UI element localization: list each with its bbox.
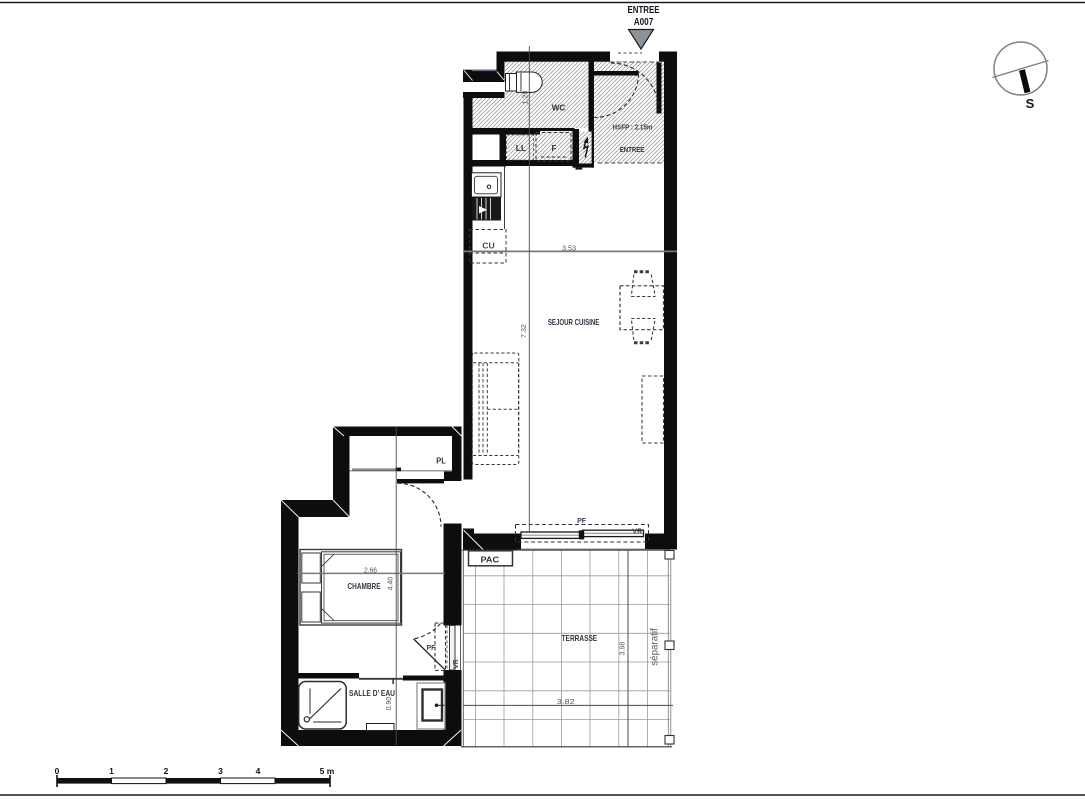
svg-text:7.32: 7.32 [521,324,528,338]
svg-text:ENTREE: ENTREE [620,145,645,154]
svg-text:0: 0 [55,766,60,776]
svg-text:3.53: 3.53 [562,245,576,252]
svg-text:PL: PL [436,457,446,466]
svg-text:VR: VR [453,659,460,669]
svg-text:WC: WC [552,103,566,113]
svg-text:4.40: 4.40 [388,577,395,591]
svg-text:PF: PF [577,518,587,525]
svg-text:F: F [552,144,557,153]
svg-text:3.98: 3.98 [620,642,627,656]
svg-text:5 m: 5 m [320,766,335,776]
svg-text:A007: A007 [634,17,654,28]
svg-text:séparatif: séparatif [649,628,661,666]
svg-text:2.66: 2.66 [364,568,377,575]
svg-text:PF: PF [427,645,437,652]
svg-text:1.29: 1.29 [523,91,530,105]
svg-text:0.90: 0.90 [386,697,393,711]
svg-text:SEJOUR CUISINE: SEJOUR CUISINE [548,317,600,327]
svg-text:3.82: 3.82 [557,699,575,706]
svg-text:VR: VR [632,529,642,536]
svg-text:ENTREE: ENTREE [628,5,660,16]
svg-text:S: S [1026,96,1035,111]
svg-text:2: 2 [164,766,169,776]
svg-text:CU: CU [482,242,495,251]
svg-text:HSFP : 2.15m: HSFP : 2.15m [613,125,653,132]
svg-text:TERRASSE: TERRASSE [562,633,598,643]
svg-text:1: 1 [109,766,114,776]
svg-text:LL: LL [516,144,527,153]
svg-text:PAC: PAC [481,556,500,565]
svg-text:CHAMBRE: CHAMBRE [348,582,382,591]
svg-text:3: 3 [218,766,223,776]
svg-text:SALLE D’ EAU: SALLE D’ EAU [349,689,395,698]
svg-text:4: 4 [256,766,261,776]
